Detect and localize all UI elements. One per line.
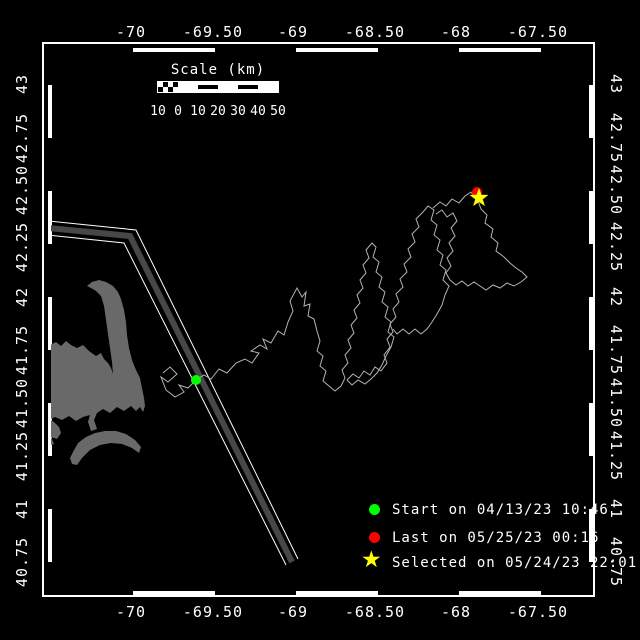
lat-tick-label: 41.25 (13, 431, 31, 481)
scale-bar-segment (178, 82, 198, 92)
lat-tick-label: 41.75 (13, 325, 31, 375)
lat-tick-label: 41.25 (607, 431, 625, 481)
lat-tick-label: 42 (607, 287, 625, 307)
lat-tick-label: 40.75 (13, 537, 31, 587)
lon-tick-label: -68.50 (345, 603, 405, 621)
scale-bar-tick: 40 (248, 104, 268, 119)
lon-tick-label: -68.50 (345, 23, 405, 41)
lon-tick-label: -70 (116, 23, 146, 41)
lat-tick-label: 42 (13, 287, 31, 307)
lat-tick-label: 42.25 (13, 222, 31, 272)
vehicle-track[interactable] (347, 206, 449, 380)
lat-tick-label: 42.75 (13, 113, 31, 163)
lat-tick-label: 41.50 (13, 378, 31, 428)
lon-tick-label: -67.50 (508, 603, 568, 621)
cape-cod-landmass (43, 280, 145, 431)
scale-bar-segment (218, 82, 238, 92)
lat-tick-label: 42.50 (607, 165, 625, 215)
lon-tick-label: -69 (278, 23, 308, 41)
legend-selected-star-icon: ★ (361, 549, 382, 572)
lon-tick-label: -68 (441, 23, 471, 41)
scale-bar-segment (258, 82, 278, 92)
scale-bar-tick: 0 (168, 104, 188, 119)
lat-tick-label: 41 (607, 499, 625, 519)
lon-tick-label: -69.50 (183, 603, 243, 621)
scale-bar-labels: 10 0 10 20 30 40 50 (148, 104, 288, 119)
lat-tick-label: 42.75 (607, 113, 625, 163)
lat-tick-label: 43 (13, 74, 31, 94)
track-map-screen: -70 -69.50 -69 -68.50 -68 -67.50 -70 -69… (0, 0, 640, 640)
scale-bar-checker-segment (158, 82, 178, 92)
scale-bar-tick: 20 (208, 104, 228, 119)
marthas-vineyard-landmass (43, 419, 61, 446)
lat-tick-label: 42.50 (13, 165, 31, 215)
scale-bar-tick: 10 (188, 104, 208, 119)
lon-tick-label: -67.50 (508, 23, 568, 41)
lat-tick-label: 41.75 (607, 325, 625, 375)
legend-start-dot-icon (369, 504, 380, 515)
scale-bar-title: Scale (km) (171, 62, 265, 78)
scale-bar (157, 81, 279, 93)
lon-tick-label: -70 (116, 603, 146, 621)
lat-tick-label: 41 (13, 499, 31, 519)
legend-start-label: Start on 04/13/23 10:46 (392, 502, 609, 518)
scale-bar-segment (198, 82, 218, 92)
legend-selected-label: Selected on 05/24/23 22:01 (392, 555, 637, 571)
nantucket-landmass (70, 431, 141, 465)
legend-last-label: Last on 05/25/23 00:16 (392, 530, 599, 546)
lat-tick-label: 43 (607, 74, 625, 94)
scale-bar-tick: 10 (148, 104, 168, 119)
scale-bar-tick: 30 (228, 104, 248, 119)
scale-bar-segment (238, 82, 258, 92)
lat-tick-label: 41.50 (607, 378, 625, 428)
lon-tick-label: -68 (441, 603, 471, 621)
start-marker[interactable] (191, 375, 201, 385)
lat-tick-label: 42.25 (607, 222, 625, 272)
legend-last-dot-icon (369, 532, 380, 543)
scale-bar-tick: 50 (268, 104, 288, 119)
vehicle-track[interactable] (433, 192, 527, 290)
lon-tick-label: -69 (278, 603, 308, 621)
lon-tick-label: -69.50 (183, 23, 243, 41)
